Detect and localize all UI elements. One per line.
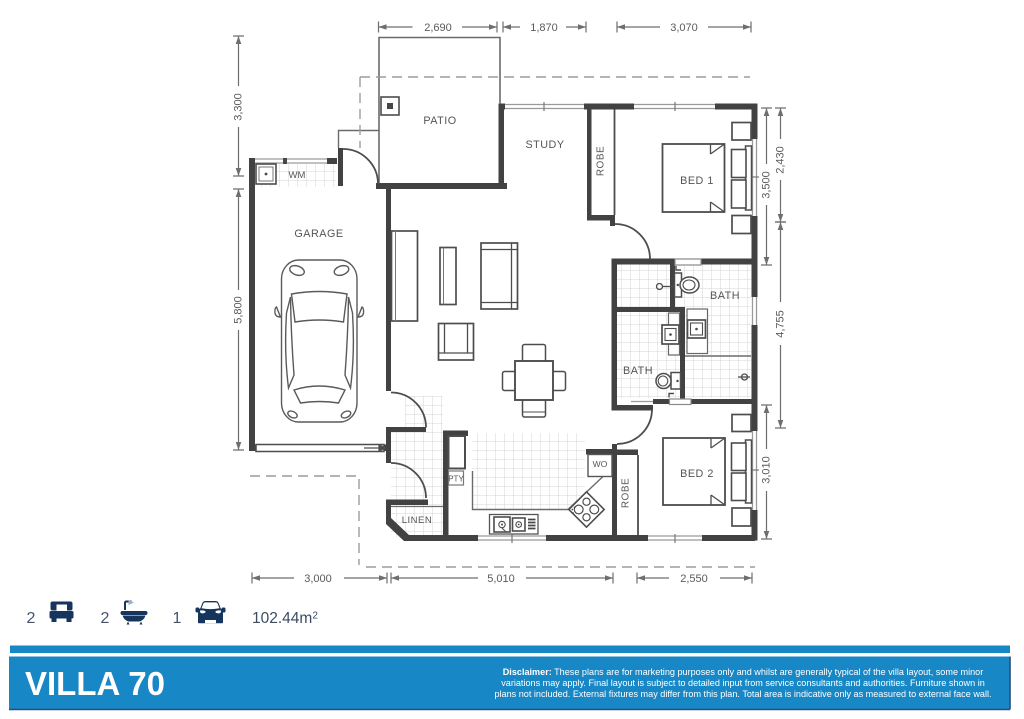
svg-text:4,755: 4,755 xyxy=(775,310,787,338)
svg-text:STUDY: STUDY xyxy=(525,139,564,151)
svg-text:Disclaimer: These plans are fo: Disclaimer: These plans are for marketin… xyxy=(503,667,984,677)
svg-text:WO: WO xyxy=(593,459,608,469)
svg-text:3,500: 3,500 xyxy=(761,171,773,199)
svg-text:PATIO: PATIO xyxy=(423,115,456,127)
svg-text:BED 1: BED 1 xyxy=(680,175,714,187)
svg-text:BATH: BATH xyxy=(710,290,740,302)
svg-text:BATH: BATH xyxy=(623,365,653,377)
svg-text:VILLA 70: VILLA 70 xyxy=(25,665,165,702)
svg-text:GARAGE: GARAGE xyxy=(294,228,343,240)
svg-text:PTY: PTY xyxy=(448,475,464,484)
svg-text:1,870: 1,870 xyxy=(530,22,558,34)
svg-text:5,800: 5,800 xyxy=(233,296,245,324)
svg-text:3,070: 3,070 xyxy=(670,22,698,34)
svg-text:5,010: 5,010 xyxy=(487,573,515,585)
svg-text:3,300: 3,300 xyxy=(233,93,245,121)
svg-text:ROBE: ROBE xyxy=(596,146,607,176)
svg-text:3,000: 3,000 xyxy=(304,573,332,585)
svg-text:1: 1 xyxy=(173,610,182,627)
svg-text:2,550: 2,550 xyxy=(680,573,708,585)
svg-text:WM: WM xyxy=(289,170,306,181)
svg-text:3,010: 3,010 xyxy=(761,456,773,484)
svg-text:2,690: 2,690 xyxy=(424,22,452,34)
svg-text:variations may apply. Final la: variations may apply. Final layout is su… xyxy=(501,678,985,688)
svg-text:2: 2 xyxy=(101,610,110,627)
svg-text:2,430: 2,430 xyxy=(775,146,787,174)
svg-text:LINEN: LINEN xyxy=(402,515,432,526)
svg-text:BED 2: BED 2 xyxy=(680,468,714,480)
svg-text:102.44m2: 102.44m2 xyxy=(252,610,318,627)
svg-text:plans not included. External f: plans not included. External fixtures ma… xyxy=(494,689,991,699)
svg-text:2: 2 xyxy=(27,610,36,627)
svg-text:ROBE: ROBE xyxy=(621,478,632,508)
